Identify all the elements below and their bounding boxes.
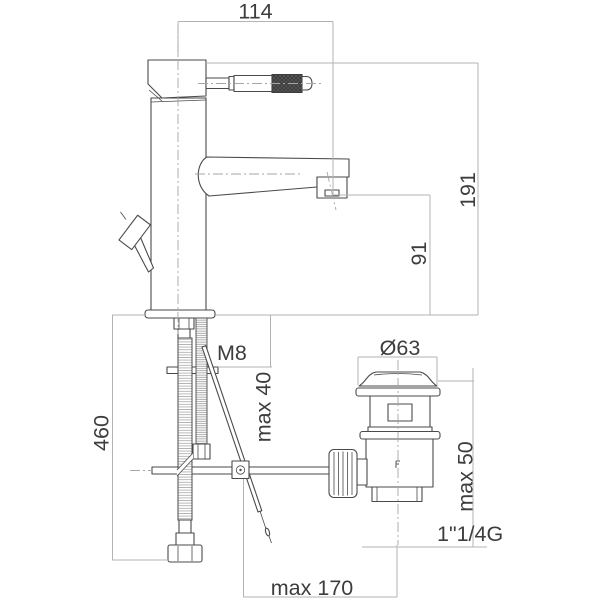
knob-tip-line xyxy=(121,212,127,220)
spout xyxy=(198,157,349,198)
knob-grip xyxy=(119,215,150,249)
m8-threaded-rod xyxy=(196,318,207,445)
dim-label-spout-reach: 114 xyxy=(238,0,272,24)
m8-rod-nut xyxy=(193,444,210,459)
faucet-dimension-diagram: 114 191 91 M8 max 40 460 Ø63 max 50 1"1/… xyxy=(0,0,600,600)
tap-body xyxy=(151,98,206,310)
dim-label-waste-max-deck: max 50 xyxy=(454,441,478,512)
waste-lip xyxy=(368,427,432,432)
hose-connector-upper xyxy=(174,318,194,338)
pop-up-waste-drawing xyxy=(329,372,440,502)
pop-up-knob xyxy=(119,212,154,272)
dim-label-max-deck-thickness: max 40 xyxy=(252,372,276,443)
base-flange xyxy=(145,310,215,318)
waste-lower-body xyxy=(366,439,433,487)
dim-label-overall-height: 191 xyxy=(456,172,480,208)
hose-collar xyxy=(176,533,194,545)
technical-drawing-page: 114 191 91 M8 max 40 460 Ø63 max 50 1"1/… xyxy=(0,0,600,600)
rod-clamp xyxy=(232,461,249,479)
hose-hex-nut xyxy=(168,545,202,562)
dim-label-fixing-thread: M8 xyxy=(217,341,247,365)
hose-lower-tube xyxy=(179,520,191,533)
waste-overflow-window xyxy=(388,404,412,421)
knurled-linkage-wheel xyxy=(329,450,357,498)
wheel-neck xyxy=(357,459,367,485)
mixer-tap-drawing xyxy=(119,60,349,562)
waste-lower-flange xyxy=(360,432,440,440)
tap-head xyxy=(148,60,206,98)
dim-label-waste-thread: 1"1/4G xyxy=(437,522,503,546)
dim-label-waste-diameter: Ø63 xyxy=(380,336,421,360)
pull-rod-bead xyxy=(265,528,271,537)
dim-label-hose-length: 460 xyxy=(90,415,114,451)
dim-line-460 xyxy=(112,315,168,560)
waste-tailpiece xyxy=(372,487,422,502)
dim-label-max-rod-distance: max 170 xyxy=(271,576,354,600)
dim-label-outlet-height: 91 xyxy=(407,242,431,266)
